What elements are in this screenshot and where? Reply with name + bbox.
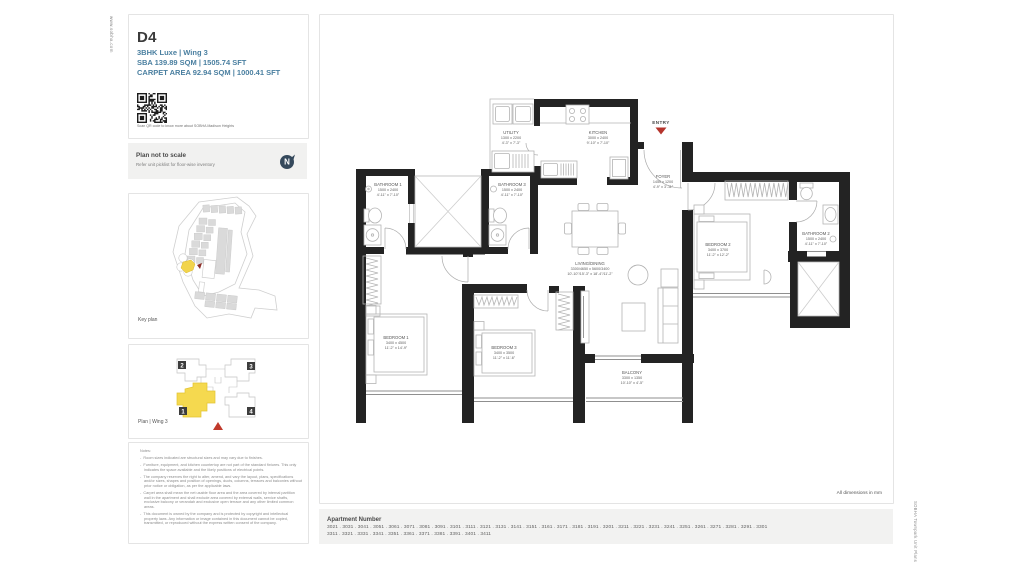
svg-text:3400 x 3700: 3400 x 3700 <box>708 248 728 252</box>
svg-text:11'-2" x 12'-2": 11'-2" x 12'-2" <box>707 253 730 257</box>
svg-text:1500 x 2400: 1500 x 2400 <box>806 237 826 241</box>
svg-text:LIVING/DINING: LIVING/DINING <box>575 261 605 266</box>
svg-text:3400 x 4500: 3400 x 4500 <box>386 341 406 345</box>
svg-text:11'-2" x 11'-6": 11'-2" x 11'-6" <box>493 356 516 360</box>
svg-text:BATHROOM 1: BATHROOM 1 <box>374 182 402 187</box>
svg-text:10'-10" x 4'-5": 10'-10" x 4'-5" <box>621 381 644 385</box>
svg-text:4'-11" x 7'-10": 4'-11" x 7'-10" <box>377 193 400 197</box>
svg-text:3300 x 1350: 3300 x 1350 <box>622 376 642 380</box>
svg-text:1300 x 2200: 1300 x 2200 <box>501 136 521 140</box>
svg-text:4'-11" x 7'-10": 4'-11" x 7'-10" <box>805 242 828 246</box>
svg-text:N: N <box>284 158 290 167</box>
svg-text:9'-10" x 7'-10": 9'-10" x 7'-10" <box>587 141 610 145</box>
svg-text:3400 x 3500: 3400 x 3500 <box>494 351 514 355</box>
svg-text:FOYER: FOYER <box>656 174 670 179</box>
svg-text:10'-10"/15'-3" x 18'-4"/11'-2": 10'-10"/15'-3" x 18'-4"/11'-2" <box>567 272 613 276</box>
svg-text:1450 x 1200: 1450 x 1200 <box>653 180 673 184</box>
svg-text:BATHROOM 2: BATHROOM 2 <box>802 231 830 236</box>
svg-text:4'-11" x 7'-10": 4'-11" x 7'-10" <box>501 193 524 197</box>
svg-text:3300/4650 x 5600/3400: 3300/4650 x 5600/3400 <box>571 267 610 271</box>
svg-text:BALCONY: BALCONY <box>622 370 642 375</box>
svg-text:3000 x 2400: 3000 x 2400 <box>588 136 608 140</box>
svg-text:4'-9" x 3'-11": 4'-9" x 3'-11" <box>653 185 674 189</box>
svg-text:11'-2" x 14'-9": 11'-2" x 14'-9" <box>385 346 408 350</box>
svg-text:ENTRY: ENTRY <box>652 120 669 125</box>
svg-text:UTILITY: UTILITY <box>503 130 519 135</box>
svg-text:BEDROOM 3: BEDROOM 3 <box>491 345 517 350</box>
svg-text:BEDROOM 2: BEDROOM 2 <box>705 242 731 247</box>
svg-text:1500 x 2400: 1500 x 2400 <box>502 188 522 192</box>
svg-text:KITCHEN: KITCHEN <box>589 130 607 135</box>
svg-text:4'-3" x 7'-3": 4'-3" x 7'-3" <box>502 141 521 145</box>
svg-text:BATHROOM 3: BATHROOM 3 <box>498 182 526 187</box>
svg-text:1500 x 2400: 1500 x 2400 <box>378 188 398 192</box>
svg-text:BEDROOM 1: BEDROOM 1 <box>383 335 409 340</box>
